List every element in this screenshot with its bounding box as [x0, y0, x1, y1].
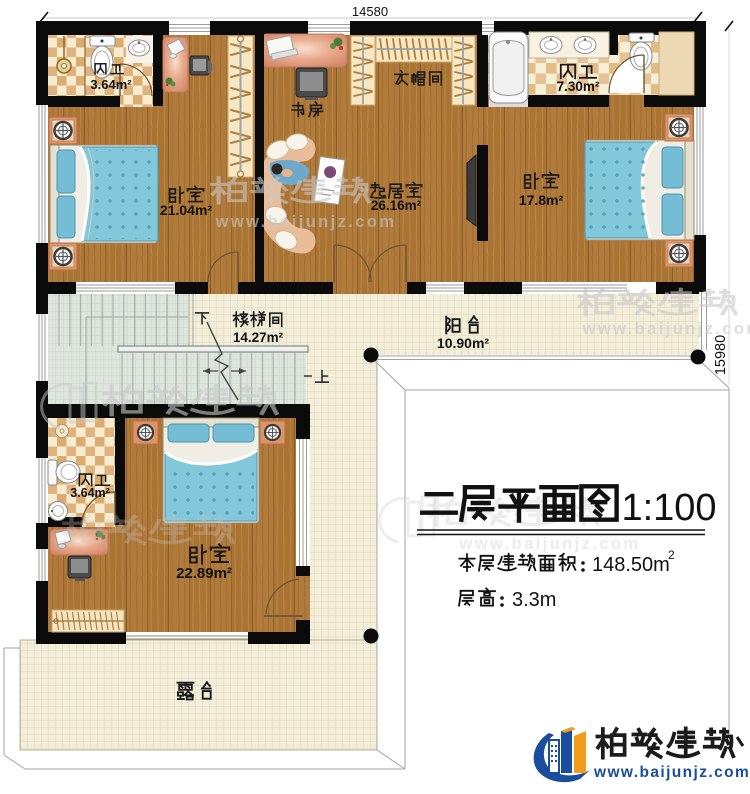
svg-text:1:100: 1:100 [621, 487, 716, 529]
svg-text:3.64m²: 3.64m² [90, 77, 132, 92]
svg-text:www.baijunjz.com: www.baijunjz.com [593, 764, 750, 781]
svg-text:3.64m²: 3.64m² [70, 486, 110, 500]
svg-text:21.04m²: 21.04m² [160, 202, 212, 218]
svg-text:17.8m²: 17.8m² [519, 192, 564, 208]
svg-text:15980: 15980 [713, 335, 729, 375]
svg-text:2: 2 [668, 548, 675, 562]
svg-text:22.89m²: 22.89m² [176, 565, 232, 582]
svg-text:10.90m²: 10.90m² [437, 335, 489, 351]
svg-text:www.baijunjz.com: www.baijunjz.com [215, 213, 397, 231]
svg-text:3.3m: 3.3m [512, 589, 556, 611]
svg-text:7.30m²: 7.30m² [557, 79, 600, 94]
svg-text:14580: 14580 [352, 4, 388, 19]
svg-text:26.16m²: 26.16m² [371, 198, 422, 213]
svg-text:14.27m²: 14.27m² [233, 330, 284, 345]
svg-text:www.baijunjz.com: www.baijunjz.com [459, 535, 641, 553]
svg-text:148.50m: 148.50m [592, 554, 670, 576]
